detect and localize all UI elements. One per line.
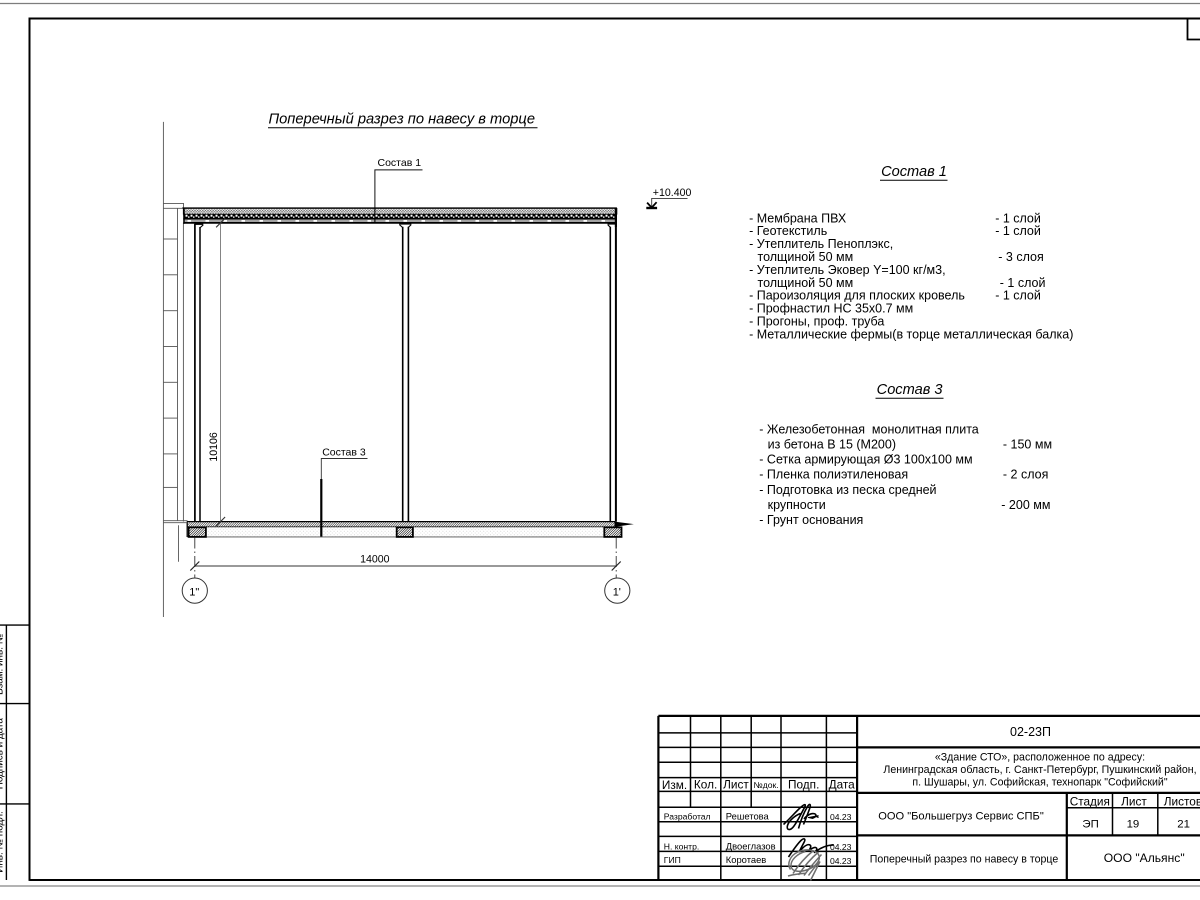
svg-text:- Мембрана ПВХ: - Мембрана ПВХ (749, 211, 847, 225)
svg-text:- 3 слоя: - 3 слоя (998, 250, 1043, 264)
svg-text:Поперечный разрез по навесу в: Поперечный разрез по навесу в торце (870, 853, 1059, 865)
svg-text:толщиной 50 мм: толщиной 50 мм (758, 250, 854, 264)
svg-text:Стадия: Стадия (1070, 794, 1110, 808)
svg-text:Изм.: Изм. (662, 778, 687, 792)
svg-text:- 1 слой: - 1 слой (995, 211, 1041, 225)
svg-text:19: 19 (1127, 818, 1140, 830)
svg-text:- Подготовка из песка средней: - Подготовка из песка средней (759, 483, 936, 497)
svg-text:- Железобетонная монолитная п: - Железобетонная монолитная плита (759, 422, 978, 436)
svg-text:Инв. № подл.: Инв. № подл. (0, 811, 6, 873)
svg-text:Подп.: Подп. (788, 778, 819, 792)
svg-text:Двоеглазов: Двоеглазов (726, 840, 776, 851)
svg-text:Решетова: Решетова (726, 810, 770, 821)
svg-text:ООО "Большегруз Сервис СПБ": ООО "Большегруз Сервис СПБ" (878, 811, 1044, 823)
svg-text:толщиной 50 мм: толщиной 50 мм (758, 276, 854, 290)
svg-text:- Грунт основания: - Грунт основания (759, 513, 863, 527)
svg-text:- 1 слой: - 1 слой (995, 289, 1041, 303)
svg-text:02-23П: 02-23П (1010, 725, 1051, 739)
svg-text:№док.: №док. (754, 780, 779, 790)
svg-text:- 1 слой: - 1 слой (995, 224, 1041, 238)
svg-text:ООО "Альянс": ООО "Альянс" (1104, 851, 1185, 865)
svg-text:Взам. инв. №: Взам. инв. № (0, 634, 6, 695)
svg-text:- 200 мм: - 200 мм (1001, 498, 1050, 512)
svg-text:04.23: 04.23 (830, 856, 852, 866)
svg-text:«Здание СТО», расположенное по: «Здание СТО», расположенное по адресу: (935, 752, 1145, 764)
svg-text:Состав 1: Состав 1 (378, 157, 422, 169)
svg-text:- Металлические фермы(в торце: - Металлические фермы(в торце металличес… (749, 327, 1073, 341)
svg-text:14000: 14000 (360, 553, 390, 565)
svg-text:Лист: Лист (1121, 794, 1147, 808)
svg-text:Разработал: Разработал (664, 811, 711, 821)
svg-text:- Утеплитель Эковер Y=100 кг/м: - Утеплитель Эковер Y=100 кг/м3, (749, 263, 945, 277)
svg-text:крупности: крупности (768, 498, 826, 512)
svg-text:Состав 1: Состав 1 (881, 164, 947, 180)
svg-text:1": 1" (189, 586, 199, 598)
svg-text:- Профнастил НС 35х0.7 мм: - Профнастил НС 35х0.7 мм (749, 302, 913, 316)
svg-text:1': 1' (613, 586, 621, 598)
svg-text:- Геотекстиль: - Геотекстиль (749, 224, 827, 238)
svg-text:+10.400: +10.400 (653, 187, 692, 199)
svg-text:Кол.: Кол. (694, 778, 717, 792)
svg-text:04.23: 04.23 (830, 812, 852, 822)
svg-text:- 1 слой: - 1 слой (1000, 276, 1046, 290)
svg-text:- Прогоны, проф. труба: - Прогоны, проф. труба (749, 315, 884, 329)
svg-text:Подпись и дата: Подпись и дата (0, 718, 6, 790)
svg-text:Листов: Листов (1164, 794, 1200, 808)
svg-text:- 2 слоя: - 2 слоя (1003, 468, 1048, 482)
svg-text:Состав 3: Состав 3 (322, 447, 366, 459)
svg-text:Поперечный разрез по навесу в: Поперечный разрез по навесу в торце (269, 111, 536, 127)
svg-text:п. Шушары, ул. Софийская, техн: п. Шушары, ул. Софийская, технопарк "Соф… (912, 777, 1167, 789)
svg-text:21: 21 (1177, 818, 1190, 830)
svg-text:из бетона В 15 (М200): из бетона В 15 (М200) (768, 438, 896, 452)
svg-text:- 150 мм: - 150 мм (1003, 438, 1052, 452)
svg-text:Н. контр.: Н. контр. (664, 841, 699, 851)
svg-text:ЭП: ЭП (1082, 818, 1098, 830)
svg-text:- Пленка полиэтиленовая: - Пленка полиэтиленовая (759, 468, 908, 482)
svg-text:Состав 3: Состав 3 (877, 382, 943, 398)
svg-text:Лист: Лист (723, 778, 749, 792)
svg-text:10106: 10106 (208, 432, 220, 462)
svg-text:- Утеплитель Пеноплэкс,: - Утеплитель Пеноплэкс, (749, 237, 893, 251)
svg-text:Дата: Дата (829, 778, 856, 792)
svg-text:- Пароизоляция для плоских кро: - Пароизоляция для плоских кровель (749, 289, 965, 303)
svg-text:- Сетка армирующая Ø3 100х100: - Сетка армирующая Ø3 100х100 мм (759, 453, 972, 467)
svg-text:ГИП: ГИП (664, 855, 681, 865)
svg-text:Коротаев: Коротаев (726, 854, 767, 865)
svg-text:04.23: 04.23 (830, 842, 852, 852)
svg-text:Ленинградская область, г. Санк: Ленинградская область, г. Санкт-Петербур… (883, 764, 1196, 776)
